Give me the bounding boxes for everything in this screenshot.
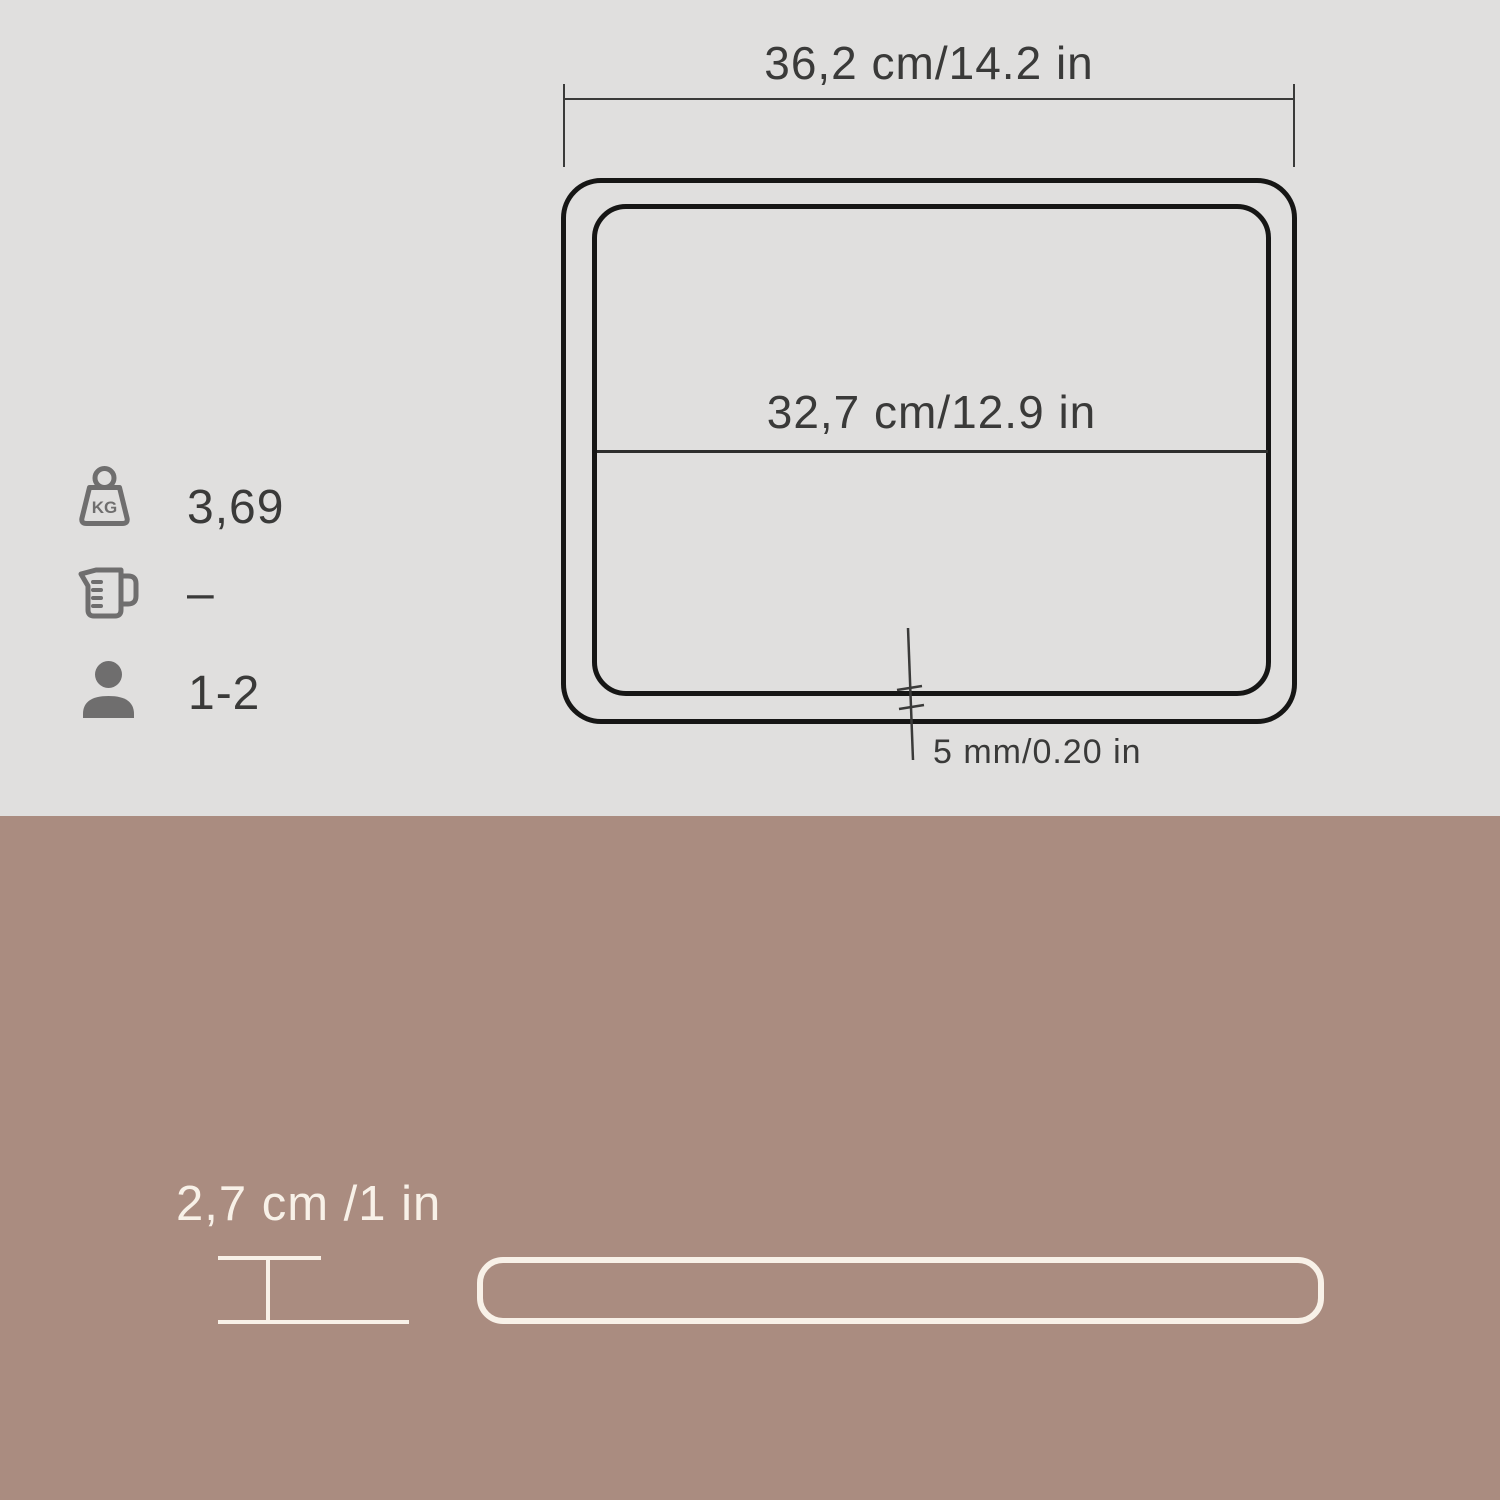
weight-value: 3,69: [187, 480, 284, 535]
height-dimension-line: [266, 1256, 270, 1324]
height-dimension-label: 2,7 cm /1 in: [176, 1176, 441, 1232]
tray-side-view-outline: [477, 1257, 1324, 1324]
width-dimension-tick-left: [563, 84, 565, 167]
thickness-dimension-label: 5 mm/0.20 in: [933, 733, 1142, 772]
height-dimension-tick-bottom: [218, 1320, 409, 1324]
capacity-value: –: [187, 566, 215, 621]
product-dimensions-infographic: 36,2 cm/14.2 in 32,7 cm/12.9 in 5 mm/0.2…: [0, 0, 1500, 1500]
inner-width-dimension-label: 32,7 cm/12.9 in: [592, 385, 1271, 439]
person-icon: [77, 660, 137, 718]
side-view-section: [0, 816, 1500, 1500]
outer-width-dimension-label: 36,2 cm/14.2 in: [561, 36, 1297, 90]
kg-icon-text: KG: [92, 498, 118, 517]
width-dimension-line: [564, 98, 1295, 100]
servings-value: 1-2: [188, 666, 260, 721]
inner-width-reference-line: [597, 450, 1268, 453]
width-dimension-tick-right: [1293, 84, 1295, 167]
weight-kg-icon: KG: [76, 466, 134, 528]
measuring-jug-icon: [75, 561, 143, 623]
